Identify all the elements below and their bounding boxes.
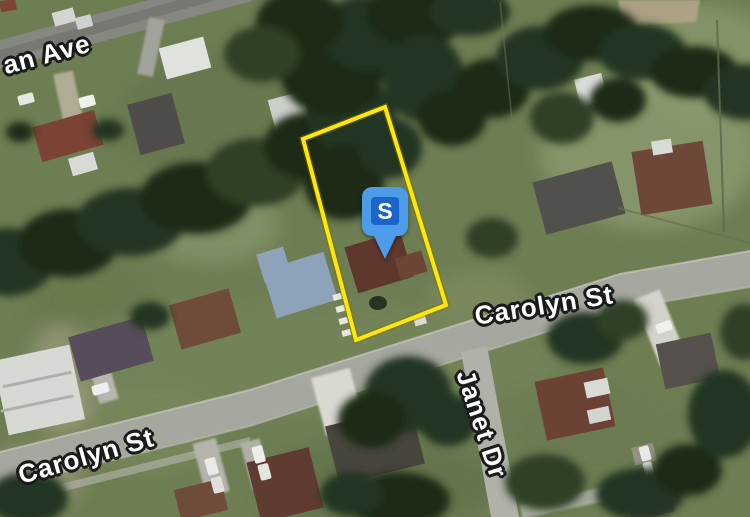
marker-letter-badge: S [371, 197, 399, 225]
marker-pin-tail [373, 234, 397, 259]
property-marker-pin[interactable]: S [362, 187, 408, 259]
marker-letter: S [377, 200, 392, 223]
satellite-map[interactable]: an Ave Carolyn St Carolyn St Janet Dr S [0, 0, 750, 517]
